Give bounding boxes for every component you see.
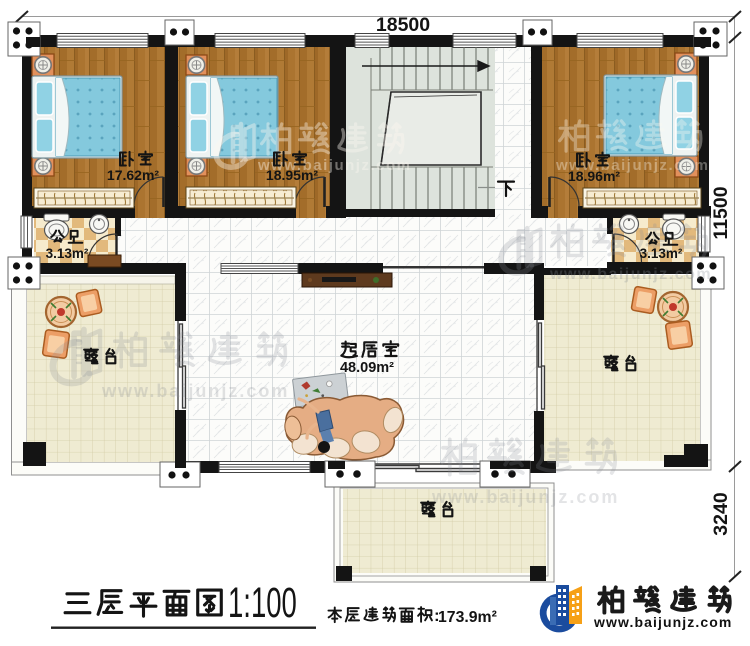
svg-text:18.96m²: 18.96m² [568, 168, 620, 184]
svg-text:48.09m²: 48.09m² [340, 360, 394, 376]
svg-text:11500: 11500 [710, 186, 732, 239]
svg-text:www.baijunjz.com: www.baijunjz.com [431, 487, 619, 507]
svg-text:18.95m²: 18.95m² [266, 167, 318, 183]
svg-text:www.baijunjz.com: www.baijunjz.com [549, 266, 712, 283]
svg-text:www.baijunjz.com: www.baijunjz.com [593, 614, 732, 630]
svg-text:www.baijunjz.com: www.baijunjz.com [101, 381, 289, 401]
svg-text:18500: 18500 [376, 14, 430, 36]
svg-text:173.9m²: 173.9m² [438, 609, 497, 626]
svg-text:3.13m²: 3.13m² [46, 246, 89, 261]
svg-text:17.62m²: 17.62m² [107, 167, 159, 183]
svg-text:3.13m²: 3.13m² [640, 246, 683, 261]
svg-text:1:100: 1:100 [228, 578, 297, 627]
svg-text:3240: 3240 [710, 492, 732, 536]
